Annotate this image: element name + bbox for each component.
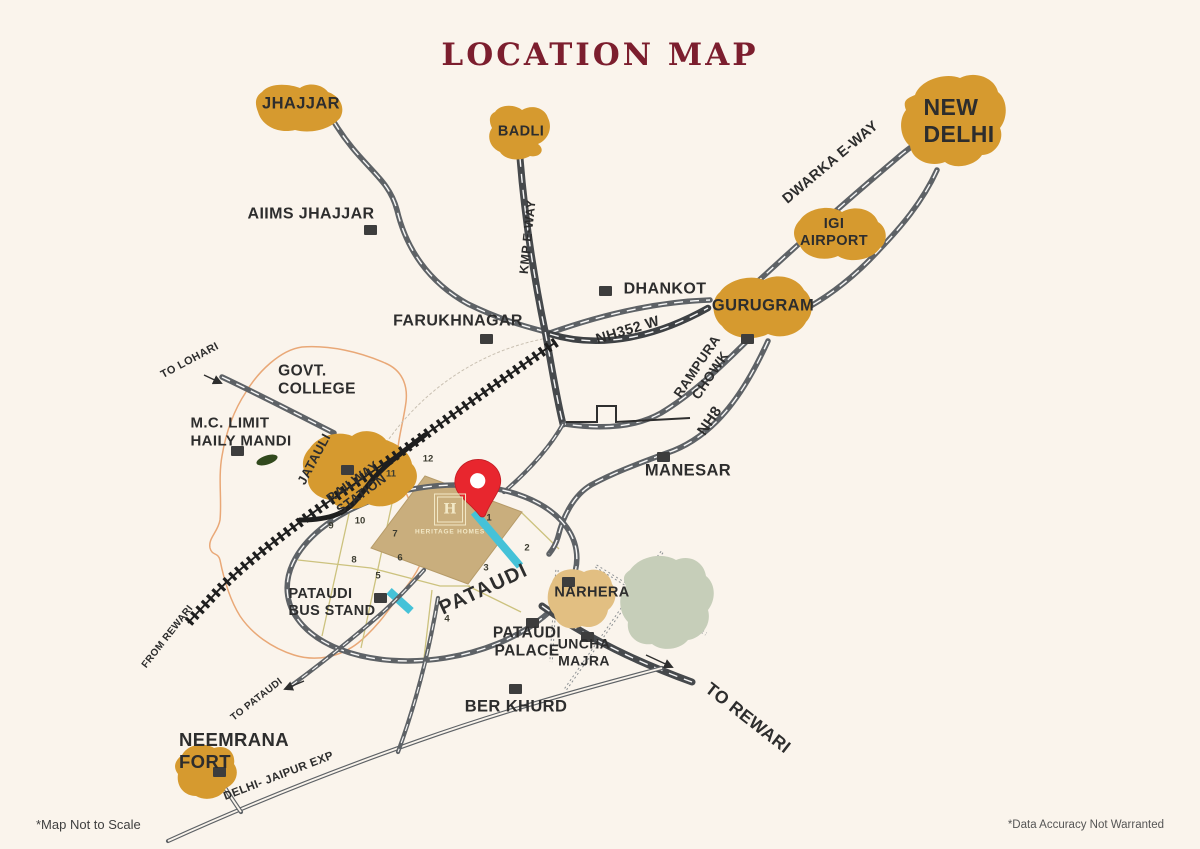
footnote-right: *Data Accuracy Not Warranted — [1008, 819, 1164, 831]
label-pataudi-palace: PATAUDI PALACE — [493, 625, 561, 662]
label-pataudi-bus-stand: PATAUDI BUS STAND — [288, 586, 375, 620]
plot-number-7: 7 — [392, 529, 397, 540]
plot-number-4: 4 — [444, 614, 449, 625]
logo-monogram-frame: H — [437, 497, 463, 523]
page-title: LOCATION MAP — [441, 37, 758, 73]
label-narhera: NARHERA — [554, 584, 629, 601]
label-dhankot: DHANKOT — [624, 281, 707, 300]
plot-number-6: 6 — [397, 553, 402, 564]
label-manesar: MANESAR — [645, 461, 731, 480]
plot-number-5: 5 — [375, 571, 380, 582]
map-canvas — [0, 0, 1200, 849]
label-neemrana-fort: NEEMRANA FORT — [179, 729, 289, 773]
label-new-delhi: NEW DELHI — [924, 94, 995, 148]
label-gurugram: GURUGRAM — [712, 296, 814, 315]
plot-number-10: 10 — [355, 516, 366, 527]
plot-number-9: 9 — [328, 521, 333, 532]
label-ber-khurd: BER KHURD — [465, 697, 568, 716]
plot-number-1: 1 — [486, 513, 491, 524]
plot-number-8: 8 — [351, 555, 356, 566]
logo-monogram: H — [443, 502, 456, 518]
plot-number-12: 12 — [423, 454, 434, 465]
label-farukhnagar: FARUKHNAGAR — [393, 313, 523, 332]
city-areas — [175, 75, 1006, 799]
label-badli: BADLI — [498, 123, 544, 140]
grove-patch — [255, 452, 279, 467]
label-uncha-majra: UNCHA MAJRA — [558, 635, 611, 668]
label-govt-college: GOVT. COLLEGE — [278, 363, 356, 400]
label-igi-airport: IGI AIRPORT — [800, 216, 868, 250]
plot-number-3: 3 — [483, 563, 488, 574]
village-path — [380, 338, 548, 452]
location-map: LOCATION MAP *Map Not to Scale *Data Acc… — [0, 0, 1200, 849]
label-mc-limit-haily-mandi: M.C. LIMIT HAILY MANDI — [190, 414, 291, 449]
plot-number-2: 2 — [524, 543, 529, 554]
label-aiims-jhajjar: AIIMS JHAJJAR — [247, 206, 374, 225]
label-jhajjar: JHAJJAR — [262, 94, 340, 113]
greenery-area — [620, 556, 714, 649]
site-logo: H HERITAGE HOMES — [415, 497, 485, 536]
plot-number-11: 11 — [386, 469, 396, 480]
footnote-left: *Map Not to Scale — [36, 817, 141, 832]
logo-name: HERITAGE HOMES — [415, 529, 485, 536]
